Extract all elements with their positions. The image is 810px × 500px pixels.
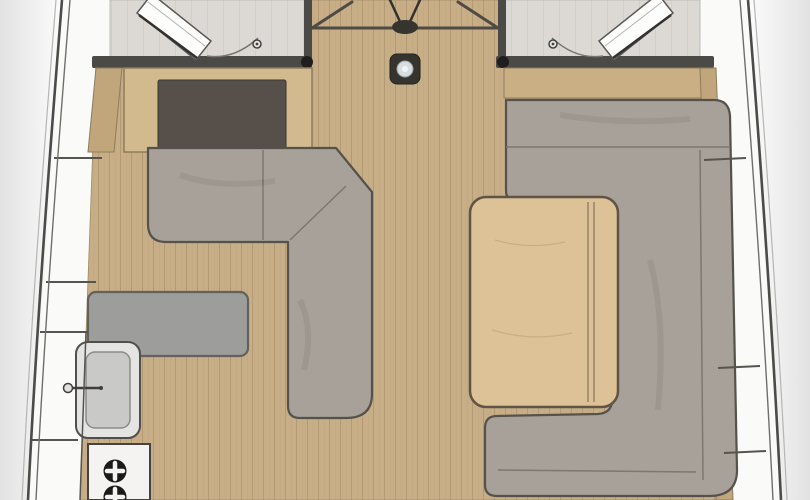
mast-base-center bbox=[402, 66, 408, 72]
floorplan-svg bbox=[0, 0, 810, 500]
shelf-top bbox=[504, 68, 706, 98]
door-stop-pin bbox=[552, 43, 555, 46]
port-cabin-wall bbox=[92, 56, 312, 68]
table-top bbox=[470, 197, 618, 407]
faucet-spout bbox=[99, 386, 103, 390]
door-stop-pin bbox=[256, 43, 259, 46]
port-companionway-wall bbox=[304, 0, 312, 62]
ladder-foot bbox=[392, 20, 418, 34]
faucet-knob bbox=[64, 384, 73, 393]
starboard-cabin-wall bbox=[496, 56, 714, 68]
saloon-table bbox=[470, 197, 618, 407]
nav-desk bbox=[124, 68, 312, 152]
sink-basin bbox=[86, 352, 130, 428]
starboard-companionway-wall bbox=[498, 0, 506, 62]
stove-burner-1 bbox=[104, 460, 127, 483]
starboard-door-jamb-dot bbox=[497, 56, 509, 68]
floorplan-canvas bbox=[0, 0, 810, 500]
port-door-jamb-dot bbox=[301, 56, 313, 68]
nav-desk-panel bbox=[158, 80, 286, 148]
